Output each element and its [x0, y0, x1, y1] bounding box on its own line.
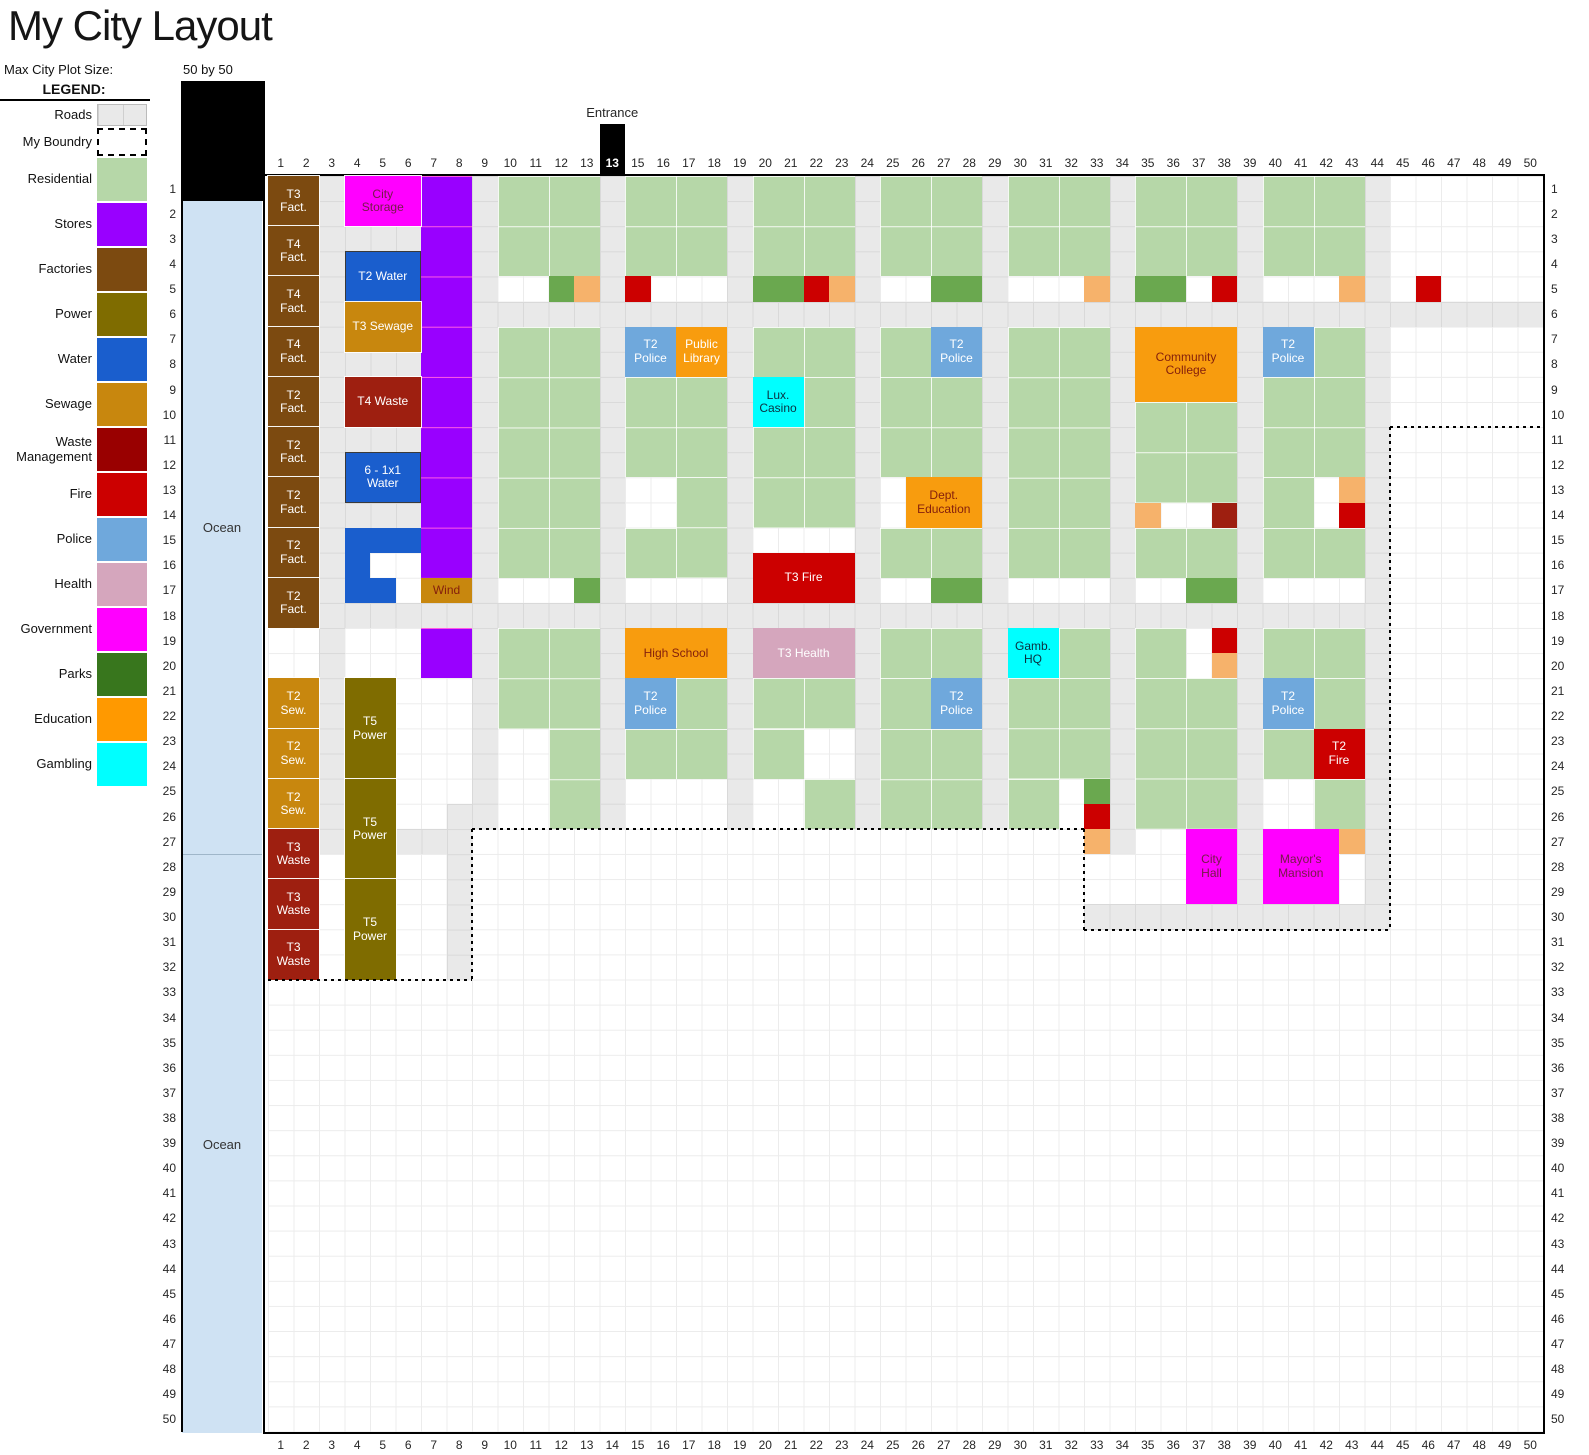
- row-number-right: 36: [1551, 1061, 1587, 1075]
- cell-water[interactable]: [370, 528, 396, 553]
- row-number-right: 13: [1551, 483, 1587, 497]
- road-segment[interactable]: [396, 829, 447, 854]
- residential-block[interactable]: [1263, 477, 1314, 527]
- grid-left-border: [263, 81, 265, 1432]
- cell-light_orange[interactable]: [574, 276, 600, 301]
- residential-block[interactable]: [1263, 628, 1365, 678]
- cell-park[interactable]: [1084, 779, 1110, 804]
- cell-park[interactable]: [1161, 276, 1187, 301]
- col-number-top: 42: [1314, 156, 1340, 170]
- building-t4-fact[interactable]: T4 Fact.: [268, 327, 319, 377]
- residential-block[interactable]: [753, 176, 855, 276]
- building-lux-casino[interactable]: Lux. Casino: [753, 377, 804, 427]
- col-number-top: 28: [957, 156, 983, 170]
- row-number-right: 40: [1551, 1161, 1587, 1175]
- col-number-top: 25: [880, 156, 906, 170]
- col-number-bottom: 42: [1314, 1438, 1340, 1452]
- building-t2-fact[interactable]: T2 Fact.: [268, 377, 319, 427]
- residential-block[interactable]: [1135, 402, 1237, 502]
- row-number-right: 22: [1551, 709, 1587, 723]
- building-t3-fire[interactable]: T3 Fire: [753, 553, 855, 603]
- row-number-left: 36: [140, 1061, 176, 1075]
- row-number-left: 34: [140, 1011, 176, 1025]
- residential-block[interactable]: [804, 377, 855, 427]
- cell-water[interactable]: [345, 528, 371, 553]
- col-number-top: 4: [345, 156, 371, 170]
- residential-block[interactable]: [1059, 628, 1110, 678]
- road-segment[interactable]: [345, 226, 422, 251]
- residential-block[interactable]: [1314, 779, 1365, 829]
- row-number-left: 46: [140, 1312, 176, 1326]
- row-number-right: 10: [1551, 408, 1587, 422]
- row-number-right: 14: [1551, 508, 1587, 522]
- legend-item-health: Health: [0, 562, 148, 607]
- col-number-bottom: 3: [319, 1438, 345, 1452]
- row-number-right: 25: [1551, 784, 1587, 798]
- col-number-bottom: 38: [1212, 1438, 1238, 1452]
- building-wind[interactable]: Wind: [421, 578, 472, 603]
- row-number-right: 41: [1551, 1186, 1587, 1200]
- building-city-hall[interactable]: City Hall: [1186, 829, 1237, 904]
- residential-block[interactable]: [1314, 327, 1365, 377]
- plot-size-value: 50 by 50: [183, 62, 233, 77]
- col-number-top: 50: [1518, 156, 1544, 170]
- col-number-top: 26: [906, 156, 932, 170]
- building-t2-sew[interactable]: T2 Sew.: [268, 779, 319, 829]
- legend-label: Factories: [0, 247, 92, 292]
- legend-swatch: [97, 698, 147, 741]
- road-segment[interactable]: [447, 804, 473, 980]
- map-corner-block: [181, 81, 263, 201]
- legend-swatch: [97, 608, 147, 651]
- col-number-bottom: 43: [1339, 1438, 1365, 1452]
- col-number-bottom: 6: [396, 1438, 422, 1452]
- building-t3-sewage[interactable]: T3 Sewage: [345, 302, 422, 352]
- cell-park[interactable]: [1135, 276, 1161, 301]
- col-number-bottom: 21: [778, 1438, 804, 1452]
- cell-park[interactable]: [574, 578, 600, 603]
- boundary-segment: [1390, 426, 1543, 428]
- residential-block[interactable]: [625, 176, 727, 276]
- building-t5-power[interactable]: T5 Power: [345, 779, 396, 879]
- boundary-segment: [1083, 829, 1085, 929]
- row-number-right: 47: [1551, 1337, 1587, 1351]
- col-number-bottom: 41: [1288, 1438, 1314, 1452]
- cell-water[interactable]: [345, 553, 371, 578]
- ocean-label: Ocean: [203, 1137, 241, 1152]
- row-number-right: 8: [1551, 357, 1587, 371]
- col-number-top: 38: [1212, 156, 1238, 170]
- col-number-bottom: 22: [804, 1438, 830, 1452]
- building-t2-fire[interactable]: T2 Fire: [1314, 729, 1365, 779]
- road-segment[interactable]: [600, 176, 626, 829]
- cell-fire[interactable]: [1212, 628, 1238, 653]
- cell-fire[interactable]: [1212, 276, 1238, 301]
- legend-label: My Boundry: [0, 127, 92, 157]
- road-segment[interactable]: [319, 176, 345, 854]
- residential-block[interactable]: [625, 729, 727, 779]
- building-t3-waste[interactable]: T3 Waste: [268, 879, 319, 929]
- col-number-top: 8: [447, 156, 473, 170]
- row-number-left: 27: [140, 835, 176, 849]
- cell-fire[interactable]: [1084, 804, 1110, 829]
- row-number-right: 4: [1551, 257, 1587, 271]
- legend-item-power: Power: [0, 292, 148, 337]
- building-t2-police[interactable]: T2 Police: [1263, 327, 1314, 377]
- cell-park[interactable]: [753, 276, 779, 301]
- col-number-bottom: 40: [1263, 1438, 1289, 1452]
- road-segment[interactable]: [1084, 904, 1390, 929]
- legend-swatch: [97, 128, 147, 156]
- stores-block[interactable]: [421, 628, 472, 678]
- residential-block[interactable]: [498, 327, 600, 578]
- col-number-bottom: 29: [982, 1438, 1008, 1452]
- col-number-bottom: 36: [1161, 1438, 1187, 1452]
- legend-divider: [0, 99, 150, 101]
- row-number-right: 31: [1551, 935, 1587, 949]
- col-number-bottom: 48: [1467, 1438, 1493, 1452]
- row-number-left: 41: [140, 1186, 176, 1200]
- cell-fire[interactable]: [804, 276, 830, 301]
- road-segment[interactable]: [982, 176, 1008, 829]
- col-number-top: 27: [931, 156, 957, 170]
- building-community-college[interactable]: Community College: [1135, 327, 1237, 402]
- road-segment[interactable]: [345, 427, 422, 452]
- legend-swatch: [97, 563, 147, 606]
- row-number-left: 45: [140, 1287, 176, 1301]
- cell-water[interactable]: [345, 578, 371, 603]
- cell-park[interactable]: [931, 578, 957, 603]
- legend-swatch: [97, 653, 147, 696]
- boundary-segment: [472, 828, 1084, 830]
- residential-block[interactable]: [753, 427, 855, 527]
- row-number-left: 50: [140, 1412, 176, 1426]
- col-number-bottom: 35: [1135, 1438, 1161, 1452]
- residential-block[interactable]: [1008, 327, 1110, 578]
- building-t4-fact[interactable]: T4 Fact.: [268, 226, 319, 276]
- row-number-right: 2: [1551, 207, 1587, 221]
- residential-block[interactable]: [880, 327, 931, 377]
- row-number-left: 37: [140, 1086, 176, 1100]
- row-number-right: 38: [1551, 1111, 1587, 1125]
- cell-light_orange[interactable]: [1212, 653, 1238, 678]
- residential-block[interactable]: [498, 176, 600, 276]
- residential-block[interactable]: [549, 729, 600, 829]
- legend-item-fire: Fire: [0, 472, 148, 517]
- road-segment[interactable]: [472, 176, 498, 829]
- legend-label: Sewage: [0, 382, 92, 427]
- cell-light_orange[interactable]: [829, 276, 855, 301]
- legend-item-sewage: Sewage: [0, 382, 148, 427]
- residential-block[interactable]: [625, 528, 676, 578]
- residential-block[interactable]: [753, 729, 804, 779]
- cell-light_orange[interactable]: [1135, 503, 1161, 528]
- legend-label: Parks: [0, 652, 92, 697]
- road-segment[interactable]: [1110, 176, 1136, 854]
- row-number-left: 43: [140, 1237, 176, 1251]
- legend-label: Water: [0, 337, 92, 382]
- col-number-top: 46: [1416, 156, 1442, 170]
- col-number-top: 2: [294, 156, 320, 170]
- building-t2-fact[interactable]: T2 Fact.: [268, 477, 319, 527]
- row-number-left: 42: [140, 1211, 176, 1225]
- row-number-left: 48: [140, 1362, 176, 1376]
- building-t2-sew[interactable]: T2 Sew.: [268, 729, 319, 779]
- col-number-top: 40: [1263, 156, 1289, 170]
- boundary-segment: [1084, 929, 1390, 931]
- residential-block[interactable]: [880, 176, 982, 276]
- building-mayor-s-mansion[interactable]: Mayor's Mansion: [1263, 829, 1340, 904]
- col-number-top: 41: [1288, 156, 1314, 170]
- building-high-school[interactable]: High School: [625, 628, 727, 678]
- cell-light_orange[interactable]: [1084, 276, 1110, 301]
- row-number-left: 40: [140, 1161, 176, 1175]
- ocean-left-border: [181, 81, 183, 1432]
- col-number-bottom: 8: [447, 1438, 473, 1452]
- col-number-bottom: 7: [421, 1438, 447, 1452]
- residential-block[interactable]: [1135, 678, 1237, 829]
- col-number-top: 36: [1161, 156, 1187, 170]
- residential-block[interactable]: [880, 628, 982, 678]
- grid-bottom-border: [263, 1432, 1545, 1434]
- cell-fire[interactable]: [1339, 503, 1365, 528]
- residential-block[interactable]: [1314, 678, 1365, 728]
- col-number-top: 39: [1237, 156, 1263, 170]
- building-dept-education[interactable]: Dept. Education: [906, 477, 983, 527]
- legend-item-waste-management: Waste Management: [0, 427, 148, 472]
- residential-block[interactable]: [1008, 779, 1059, 829]
- legend-swatch: [97, 203, 147, 246]
- building-t2-fact[interactable]: T2 Fact.: [268, 528, 319, 578]
- legend-item-residential: Residential: [0, 157, 148, 202]
- entrance-header-cell: 13: [600, 150, 626, 176]
- legend-label: Government: [0, 607, 92, 652]
- building-t4-waste[interactable]: T4 Waste: [345, 377, 422, 427]
- building-t2-police[interactable]: T2 Police: [625, 678, 676, 728]
- row-number-right: 45: [1551, 1287, 1587, 1301]
- residential-block[interactable]: [1135, 528, 1237, 578]
- cell-fire[interactable]: [1416, 276, 1442, 301]
- building-t3-waste[interactable]: T3 Waste: [268, 829, 319, 879]
- residential-block[interactable]: [880, 377, 982, 477]
- road-segment[interactable]: [855, 176, 881, 829]
- road-segment[interactable]: [319, 603, 1390, 628]
- building-t2-police[interactable]: T2 Police: [625, 327, 676, 377]
- legend-label: Police: [0, 517, 92, 562]
- col-number-top: 19: [727, 156, 753, 170]
- col-number-top: 49: [1492, 156, 1518, 170]
- row-number-right: 28: [1551, 860, 1587, 874]
- building-t5-power[interactable]: T5 Power: [345, 678, 396, 778]
- cell-park[interactable]: [549, 276, 575, 301]
- row-number-right: 1: [1551, 182, 1587, 196]
- cell-park[interactable]: [1186, 578, 1212, 603]
- col-number-bottom: 37: [1186, 1438, 1212, 1452]
- building-t2-police[interactable]: T2 Police: [1263, 678, 1314, 728]
- col-number-bottom: 5: [370, 1438, 396, 1452]
- col-number-bottom: 45: [1390, 1438, 1416, 1452]
- col-number-bottom: 1: [268, 1438, 294, 1452]
- residential-block[interactable]: [1135, 176, 1237, 276]
- city-layout-page: My City Layout Max City Plot Size: 50 by…: [0, 0, 1589, 1455]
- road-segment[interactable]: [472, 302, 1543, 327]
- legend-label: Residential: [0, 157, 92, 202]
- residential-block[interactable]: [1008, 678, 1110, 778]
- legend-swatch: [97, 338, 147, 381]
- road-segment[interactable]: [345, 352, 422, 377]
- residential-block[interactable]: [880, 528, 982, 578]
- col-number-top: 22: [804, 156, 830, 170]
- legend-item-education: Education: [0, 697, 148, 742]
- residential-block[interactable]: [1008, 176, 1110, 276]
- row-number-right: 3: [1551, 232, 1587, 246]
- residential-block[interactable]: [880, 678, 931, 728]
- col-number-bottom: 11: [523, 1438, 549, 1452]
- col-number-top: 24: [855, 156, 881, 170]
- col-number-bottom: 12: [549, 1438, 575, 1452]
- col-number-top: 18: [702, 156, 728, 170]
- cell-park[interactable]: [957, 276, 983, 301]
- cell-light_orange[interactable]: [1339, 829, 1365, 854]
- row-number-left: 28: [140, 860, 176, 874]
- col-number-top: 44: [1365, 156, 1391, 170]
- residential-block[interactable]: [880, 729, 982, 829]
- legend-item-gambling: Gambling: [0, 742, 148, 787]
- col-number-bottom: 20: [753, 1438, 779, 1452]
- col-number-bottom: 13: [574, 1438, 600, 1452]
- row-number-right: 17: [1551, 583, 1587, 597]
- building-6-1x1-water[interactable]: 6 - 1x1 Water: [345, 452, 422, 502]
- row-number-right: 21: [1551, 684, 1587, 698]
- col-number-top: 13: [574, 156, 600, 170]
- cell-park[interactable]: [957, 578, 983, 603]
- building-public-library[interactable]: Public Library: [676, 327, 727, 377]
- cell-light_orange[interactable]: [1339, 477, 1365, 502]
- legend-label: Power: [0, 292, 92, 337]
- building-t2-water[interactable]: T2 Water: [345, 251, 422, 301]
- cell-water[interactable]: [396, 528, 422, 553]
- boundary-segment: [471, 829, 473, 980]
- road-segment[interactable]: [345, 503, 422, 528]
- legend-label: Fire: [0, 472, 92, 517]
- row-number-left: 29: [140, 885, 176, 899]
- grid-right-border: [1543, 174, 1545, 1432]
- cell-waste[interactable]: [1212, 503, 1238, 528]
- cell-light_orange[interactable]: [1084, 829, 1110, 854]
- row-number-right: 12: [1551, 458, 1587, 472]
- building-t5-power[interactable]: T5 Power: [345, 879, 396, 979]
- col-number-top: 6: [396, 156, 422, 170]
- legend-title: LEGEND:: [0, 81, 148, 97]
- building-gamb-hq[interactable]: Gamb. HQ: [1008, 628, 1059, 678]
- cell-fire[interactable]: [625, 276, 651, 301]
- col-number-top: 1: [268, 156, 294, 170]
- row-number-left: 32: [140, 960, 176, 974]
- building-t3-fact[interactable]: T3 Fact.: [268, 176, 319, 226]
- legend-label: Health: [0, 562, 92, 607]
- row-number-right: 42: [1551, 1211, 1587, 1225]
- residential-block[interactable]: [753, 678, 855, 728]
- residential-block[interactable]: [498, 628, 600, 728]
- residential-block[interactable]: [676, 678, 727, 728]
- residential-block[interactable]: [1263, 729, 1314, 779]
- col-number-bottom: 23: [829, 1438, 855, 1452]
- building-t2-police[interactable]: T2 Police: [931, 678, 982, 728]
- row-number-right: 49: [1551, 1387, 1587, 1401]
- residential-block[interactable]: [1263, 377, 1365, 477]
- residential-block[interactable]: [1263, 528, 1365, 578]
- col-number-bottom: 26: [906, 1438, 932, 1452]
- col-number-top: 45: [1390, 156, 1416, 170]
- col-number-bottom: 14: [600, 1438, 626, 1452]
- cell-park[interactable]: [778, 276, 804, 301]
- building-t3-waste[interactable]: T3 Waste: [268, 930, 319, 980]
- building-t2-fact[interactable]: T2 Fact.: [268, 427, 319, 477]
- legend-swatch: [97, 293, 147, 336]
- legend-item-stores: Stores: [0, 202, 148, 247]
- road-segment[interactable]: [1365, 176, 1391, 930]
- boundary-segment: [268, 979, 472, 981]
- legend-item-roads: Roads: [0, 103, 148, 127]
- row-number-left: 26: [140, 810, 176, 824]
- residential-block[interactable]: [753, 327, 855, 377]
- residential-block[interactable]: [676, 477, 727, 577]
- col-number-top: 9: [472, 156, 498, 170]
- col-number-bottom: 39: [1237, 1438, 1263, 1452]
- col-number-bottom: 24: [855, 1438, 881, 1452]
- building-t2-sew[interactable]: T2 Sew.: [268, 678, 319, 728]
- row-number-right: 19: [1551, 634, 1587, 648]
- cell-park[interactable]: [1212, 578, 1238, 603]
- row-number-right: 20: [1551, 659, 1587, 673]
- row-number-right: 46: [1551, 1312, 1587, 1326]
- legend-swatch: [97, 518, 147, 561]
- cell-light_orange[interactable]: [1339, 276, 1365, 301]
- building-t2-police[interactable]: T2 Police: [931, 327, 982, 377]
- col-number-bottom: 30: [1008, 1438, 1034, 1452]
- residential-block[interactable]: [804, 779, 855, 829]
- legend-item-factories: Factories: [0, 247, 148, 292]
- cell-park[interactable]: [931, 276, 957, 301]
- building-city-storage[interactable]: City Storage: [345, 176, 422, 226]
- building-t3-health[interactable]: T3 Health: [753, 628, 855, 678]
- row-number-right: 30: [1551, 910, 1587, 924]
- road-segment[interactable]: [1237, 176, 1263, 904]
- building-t4-fact[interactable]: T4 Fact.: [268, 276, 319, 326]
- cell-water[interactable]: [370, 578, 396, 603]
- legend-item-water: Water: [0, 337, 148, 382]
- stores-block[interactable]: [421, 176, 472, 578]
- col-number-top: 43: [1339, 156, 1365, 170]
- row-number-right: 24: [1551, 759, 1587, 773]
- col-number-bottom: 33: [1084, 1438, 1110, 1452]
- col-number-bottom: 25: [880, 1438, 906, 1452]
- row-number-left: 33: [140, 985, 176, 999]
- residential-block[interactable]: [1263, 176, 1365, 276]
- row-number-right: 6: [1551, 307, 1587, 321]
- residential-block[interactable]: [625, 377, 727, 477]
- building-t2-fact[interactable]: T2 Fact.: [268, 578, 319, 628]
- page-title: My City Layout: [8, 2, 272, 50]
- col-number-top: 48: [1467, 156, 1493, 170]
- ocean-top: Ocean: [182, 201, 262, 854]
- residential-block[interactable]: [1135, 628, 1186, 678]
- col-number-bottom: 2: [294, 1438, 320, 1452]
- col-number-top: 15: [625, 156, 651, 170]
- col-number-top: 35: [1135, 156, 1161, 170]
- road-segment[interactable]: [727, 176, 753, 829]
- legend-swatch: [97, 104, 147, 126]
